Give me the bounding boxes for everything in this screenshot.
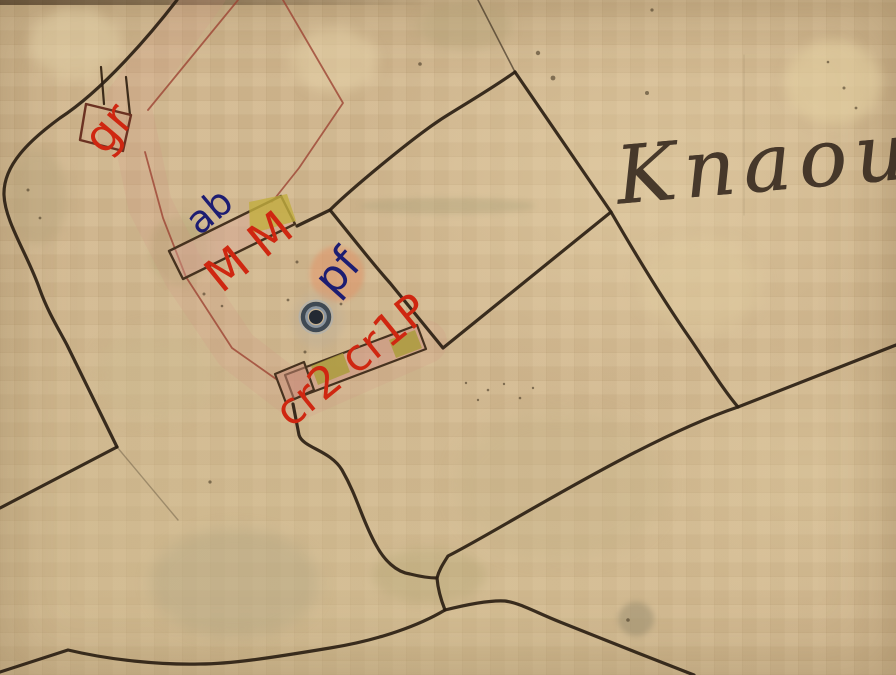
parcel-left-edge [297,72,515,226]
road-diagonal [437,345,896,610]
boundary-thin-top [478,0,515,72]
parcel-v-boundary [330,210,611,348]
map-linework [0,0,896,675]
historical-map-sheet: gr ab M M pf cr2 cr1P Knaou [0,0,896,675]
road-bottom-right [445,601,694,675]
boundary-left-branch [0,447,117,508]
boundary-faint-branch [117,447,178,520]
point-marker-icon [300,301,333,334]
lower-parcel-corner [293,404,437,578]
road-bottom-left [0,610,445,672]
